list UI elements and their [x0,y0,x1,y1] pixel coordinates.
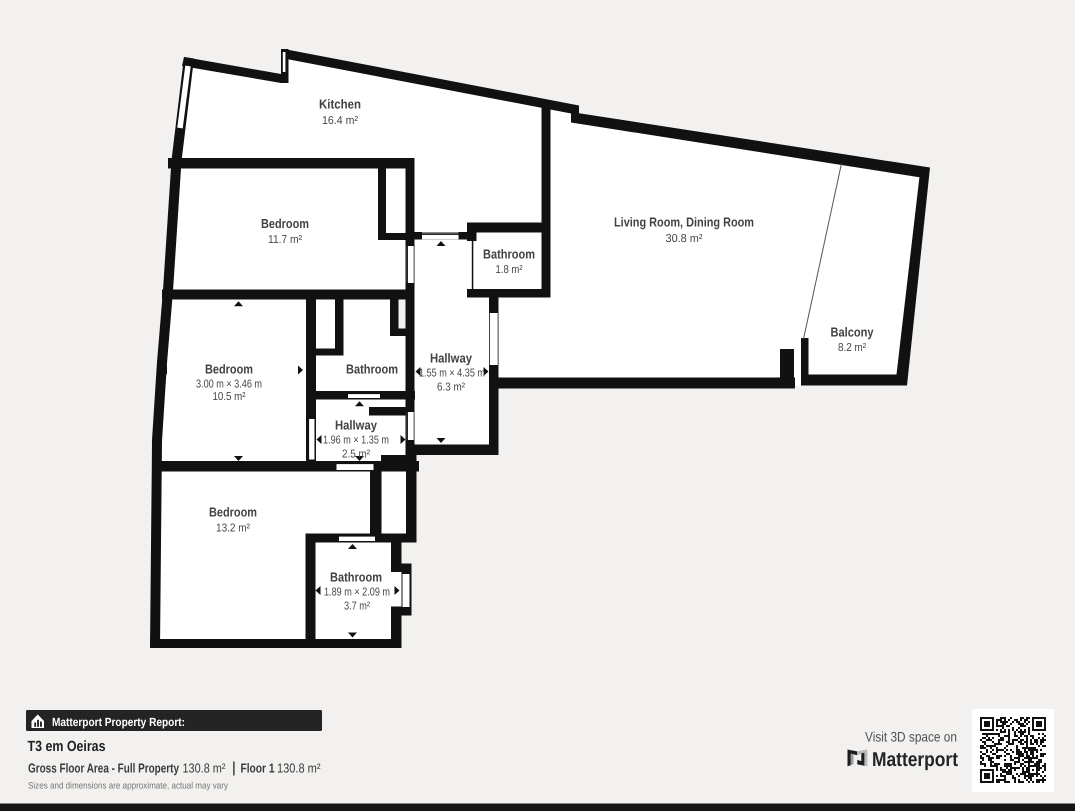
svg-text:Bedroom: Bedroom [209,505,257,520]
svg-text:Visit 3D space on: Visit 3D space on [865,729,957,744]
svg-text:130.8 m²: 130.8 m² [183,761,227,776]
svg-text:Bathroom: Bathroom [330,570,382,585]
svg-text:1.89 m × 2.09 m: 1.89 m × 2.09 m [324,587,390,599]
svg-text:3.00 m × 3.46 m: 3.00 m × 3.46 m [196,379,262,391]
svg-text:Sizes and dimensions are appro: Sizes and dimensions are approximate, ac… [28,780,228,790]
svg-text:11.7 m²: 11.7 m² [268,234,302,246]
svg-text:8.2 m²: 8.2 m² [838,342,866,354]
svg-text:1.8 m²: 1.8 m² [496,264,523,276]
svg-text:2.5 m²: 2.5 m² [342,449,370,461]
svg-text:Bathroom: Bathroom [346,362,398,377]
svg-text:Balcony: Balcony [831,325,875,340]
svg-text:Hallway: Hallway [335,418,378,433]
svg-text:Gross Floor Area - Full Proper: Gross Floor Area - Full Property [28,761,180,776]
svg-text:6.3 m²: 6.3 m² [437,382,465,394]
svg-text:Matterport: Matterport [872,749,958,771]
svg-text:Bedroom: Bedroom [261,216,309,231]
svg-text:Bathroom: Bathroom [483,247,535,262]
svg-text:3.7 m²: 3.7 m² [344,601,370,613]
svg-text:130.8 m²: 130.8 m² [277,761,321,776]
svg-text:Bedroom: Bedroom [205,362,253,377]
svg-text:Hallway: Hallway [430,351,473,366]
svg-text:1.55 m × 4.35 m: 1.55 m × 4.35 m [419,368,485,380]
svg-text:Matterport Property Report:: Matterport Property Report: [52,715,185,729]
svg-text:Living Room, Dining Room: Living Room, Dining Room [614,215,754,230]
svg-text:Floor 1: Floor 1 [241,761,275,776]
svg-text:16.4 m²: 16.4 m² [322,115,358,127]
svg-text:30.8 m²: 30.8 m² [666,233,703,245]
svg-text:10.5 m²: 10.5 m² [213,391,246,403]
svg-text:Kitchen: Kitchen [319,97,361,112]
svg-text:T3 em Oeiras: T3 em Oeiras [28,739,106,755]
svg-text:13.2 m²: 13.2 m² [216,523,250,535]
svg-text:1.96 m × 1.35 m: 1.96 m × 1.35 m [323,435,389,447]
